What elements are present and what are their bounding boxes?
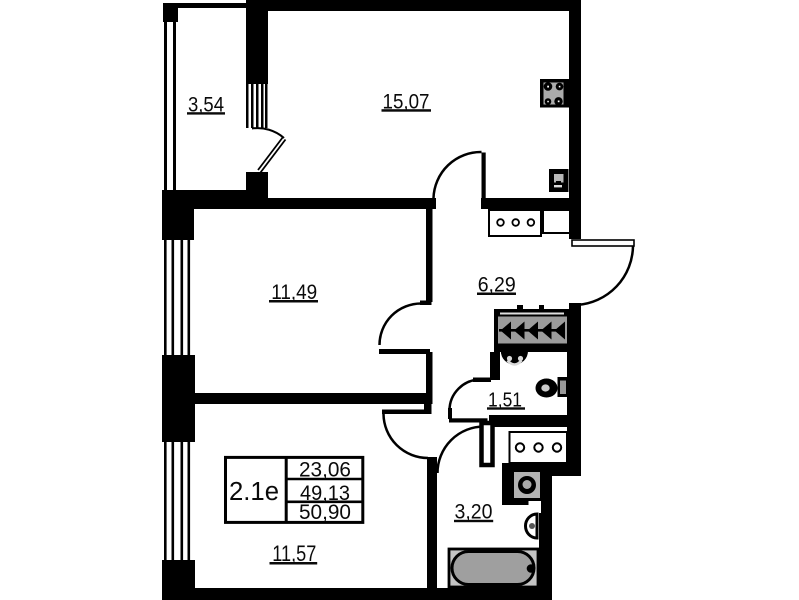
svg-text:2.1е: 2.1е (229, 478, 279, 506)
svg-text:23,06: 23,06 (299, 459, 351, 482)
svg-text:50,90: 50,90 (299, 501, 351, 524)
